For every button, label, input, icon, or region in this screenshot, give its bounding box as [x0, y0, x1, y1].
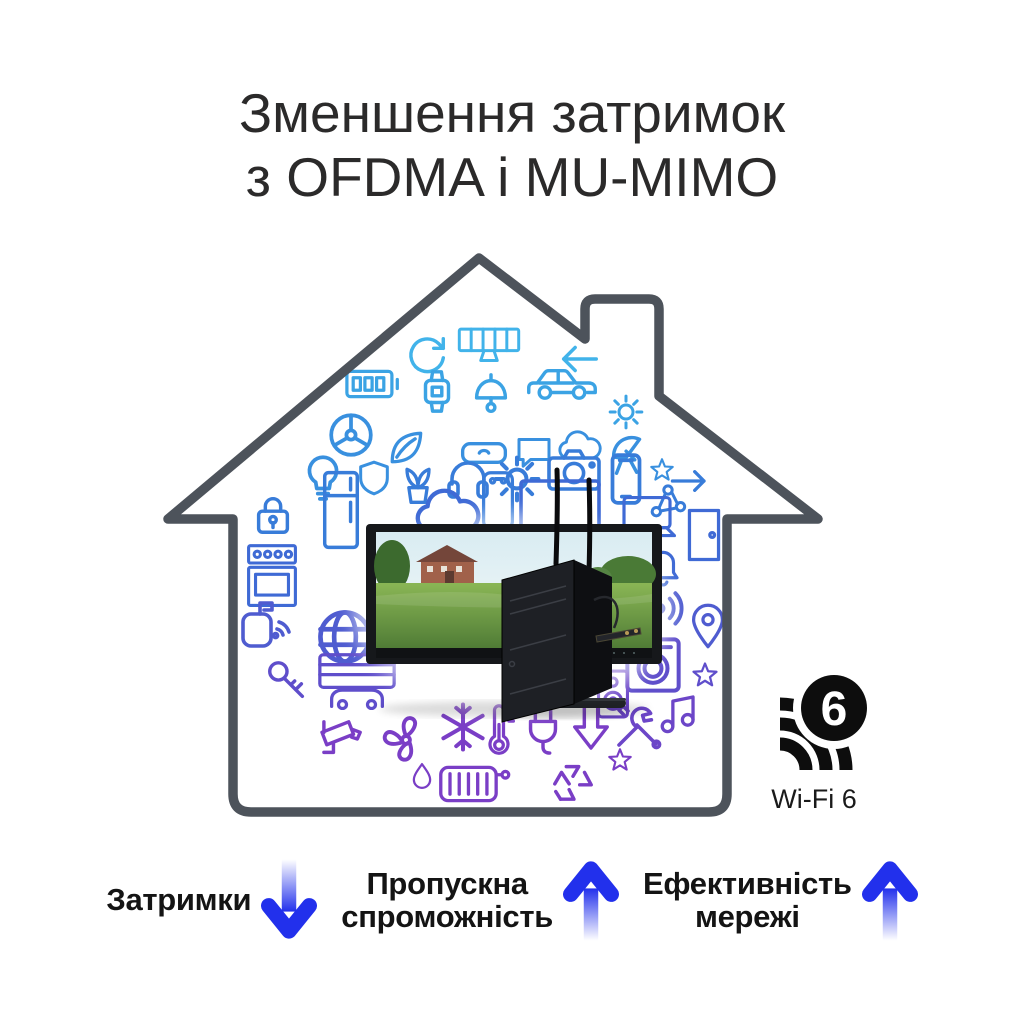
star-icon — [651, 459, 672, 479]
metric-efficiency-line1: Ефективність — [643, 867, 852, 900]
metric-throughput-line2: спроможність — [341, 900, 553, 933]
metric-latency: Затримки — [106, 856, 317, 944]
up-arrow-icon — [862, 856, 918, 944]
recycle-icon — [555, 767, 591, 800]
music-note-icon — [662, 697, 693, 732]
arrow-right-icon — [672, 472, 704, 491]
metric-throughput-line1: Пропускна — [341, 867, 553, 900]
metric-throughput-label: Пропускна спроможність — [341, 867, 553, 934]
radiation-fan-icon — [331, 415, 371, 455]
star-icon — [609, 749, 630, 769]
leaf-icon — [392, 433, 420, 461]
stove-icon — [249, 546, 296, 606]
wind-turbine-icon — [385, 718, 415, 760]
sync-arrow-icon — [411, 339, 443, 372]
solar-panel-icon — [459, 329, 518, 360]
metrics-row: Затримки Пропускна спроможність Ефективн… — [0, 856, 1024, 944]
key-icon — [270, 663, 303, 697]
security-camera-icon — [322, 722, 360, 753]
metric-efficiency-line2: мережі — [643, 900, 852, 933]
vr-glasses-icon — [463, 444, 506, 463]
water-drop-icon — [414, 764, 430, 788]
wifi-6-logo: 6 Wi-Fi 6 — [756, 668, 882, 818]
wifi-antenna-2 — [589, 480, 590, 572]
chat-bubble-icon — [519, 440, 549, 467]
wifi6-infographic: Зменшення затримок з OFDMA і MU-MIMO — [0, 0, 1024, 1024]
metric-latency-label: Затримки — [106, 883, 251, 916]
location-pin-icon — [694, 605, 723, 646]
down-arrow-icon — [261, 856, 317, 944]
car-icon — [529, 371, 596, 399]
wifi-6-label: Wi-Fi 6 — [771, 784, 856, 814]
smartphone-icon — [613, 455, 640, 503]
gear-icon — [610, 396, 642, 428]
star-icon — [694, 664, 717, 686]
mailbox-icon — [243, 603, 289, 646]
shield-icon — [361, 462, 388, 494]
metric-efficiency: Ефективність мережі — [643, 856, 918, 944]
lock-icon — [259, 499, 288, 533]
up-arrow-icon — [563, 856, 619, 944]
wifi-antenna-1 — [556, 470, 557, 564]
battery-icon — [347, 371, 397, 396]
lamp-icon — [477, 375, 506, 411]
door-icon — [689, 510, 718, 559]
arrow-left-icon — [564, 348, 597, 371]
potted-plant-icon — [407, 469, 429, 502]
smart-watch-icon — [426, 372, 449, 411]
wifi-6-number: 6 — [821, 683, 848, 736]
radiator-icon — [441, 767, 509, 800]
metric-efficiency-label: Ефективність мережі — [643, 867, 852, 934]
metric-throughput: Пропускна спроможність — [341, 856, 619, 944]
